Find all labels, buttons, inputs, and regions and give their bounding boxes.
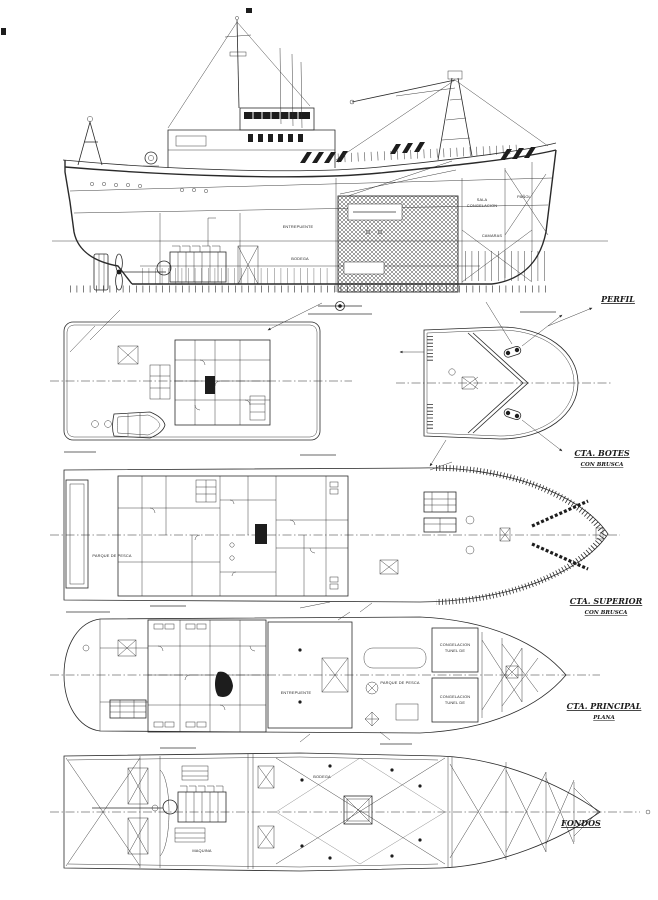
room-label-tunel-2: TUNEL DE	[445, 700, 466, 705]
main-engine	[157, 218, 226, 282]
lifeboat	[92, 412, 165, 438]
mast-foot	[449, 369, 478, 389]
deckhouse	[168, 130, 335, 168]
cabin-rooms	[148, 620, 266, 732]
crane-boom	[352, 80, 455, 102]
leader-lines	[300, 612, 390, 742]
engine-casing-hatched	[338, 161, 458, 292]
wheelhouse	[240, 108, 314, 130]
ship-plan-svg: ENTREPUENTE BODEGA SALA CONGELACION CAMA…	[0, 0, 658, 900]
profile-label: PERFIL	[600, 294, 635, 304]
skylight	[150, 365, 170, 399]
fish-hatch	[380, 560, 398, 574]
hold-tank: BODEGA	[276, 758, 445, 864]
engine-room: MAQUINA	[92, 766, 226, 856]
stern-gantry	[78, 116, 159, 166]
boat-deck-view: CTA. BOTES CON BRUSCA	[50, 302, 630, 468]
stairs	[255, 524, 267, 544]
leader-lines	[300, 462, 452, 612]
upper-deck-sublabel: CON BRUSCA	[585, 610, 628, 616]
accommodation-rooms	[118, 476, 348, 596]
boat-deck-label: CTA. BOTES	[574, 448, 630, 458]
deckhouse-rooms	[175, 340, 270, 425]
room-label-camaras: CAMARAS	[482, 233, 503, 238]
room-label-panol: PAÑOL	[517, 194, 531, 199]
boat-deck-plan	[50, 303, 352, 452]
winch	[250, 396, 265, 420]
funnel-casing	[118, 346, 138, 364]
centerline-mark	[646, 810, 650, 814]
room-label-parque-main: PARQUE DE PESCA	[380, 680, 419, 685]
room-label-parque-de-pesca: PARQUE DE PESCA	[92, 553, 131, 558]
room-label-entrepuente-main: ENTREPUENTE	[281, 690, 312, 695]
hull-outline	[63, 143, 556, 284]
bottom-plan-label: FONDOS	[560, 818, 601, 828]
scan-artifact	[246, 8, 252, 13]
leader-lines	[70, 310, 120, 352]
room-label-entrepuente: ENTREPUENTE	[283, 224, 314, 229]
stairs	[205, 376, 215, 394]
main-deck-sublabel: PLANA	[592, 715, 615, 721]
blueprint-sheet: ENTREPUENTE BODEGA SALA CONGELACION CAMA…	[0, 0, 658, 900]
main-deck-label: CTA. PRINCIPAL	[567, 701, 642, 711]
stair-well	[215, 672, 233, 697]
room-label-bodega: BODEGA	[291, 256, 309, 261]
room-label-tunel-1: TUNEL DE	[445, 648, 466, 653]
windlass	[424, 492, 510, 554]
galley-skylight	[196, 480, 216, 502]
leader-arrow	[548, 308, 592, 326]
room-label-congelacion: CONGELACION	[467, 203, 497, 208]
scan-artifact	[1, 28, 6, 35]
forecastle-deck-plan	[396, 302, 612, 466]
bottom-plan-view: MAQUINA BODEGA	[50, 748, 650, 871]
room-label-bodega-fondos: BODEGA	[313, 774, 331, 779]
room-label-sala: SALA	[477, 197, 488, 202]
room-label-congelacion-1: CONGELACION	[440, 642, 470, 647]
boat-deck-sublabel: CON BRUSCA	[581, 462, 624, 468]
main-mast	[168, 16, 310, 128]
upper-deck-label: CTA. SUPERIOR	[570, 596, 643, 606]
profile-view: ENTREPUENTE BODEGA SALA CONGELACION CAMA…	[52, 16, 635, 326]
hold-bulkhead	[248, 754, 274, 869]
leader-line	[486, 302, 512, 344]
scale-emblem	[308, 302, 372, 315]
stern-ramp	[66, 480, 88, 588]
upper-deck-view: PARQUE DE PESCA CTA. SUPERIOR CON BRUSCA	[50, 455, 643, 616]
room-label-congelacion-2: CONGELACION	[440, 694, 470, 699]
main-deck-view: ENTREPUENTE PARQUE DE PESCA CONGELACION …	[50, 612, 642, 744]
fish-processing-area: PARQUE DE PESCA	[364, 648, 426, 726]
room-label-maquina: MAQUINA	[192, 848, 211, 853]
